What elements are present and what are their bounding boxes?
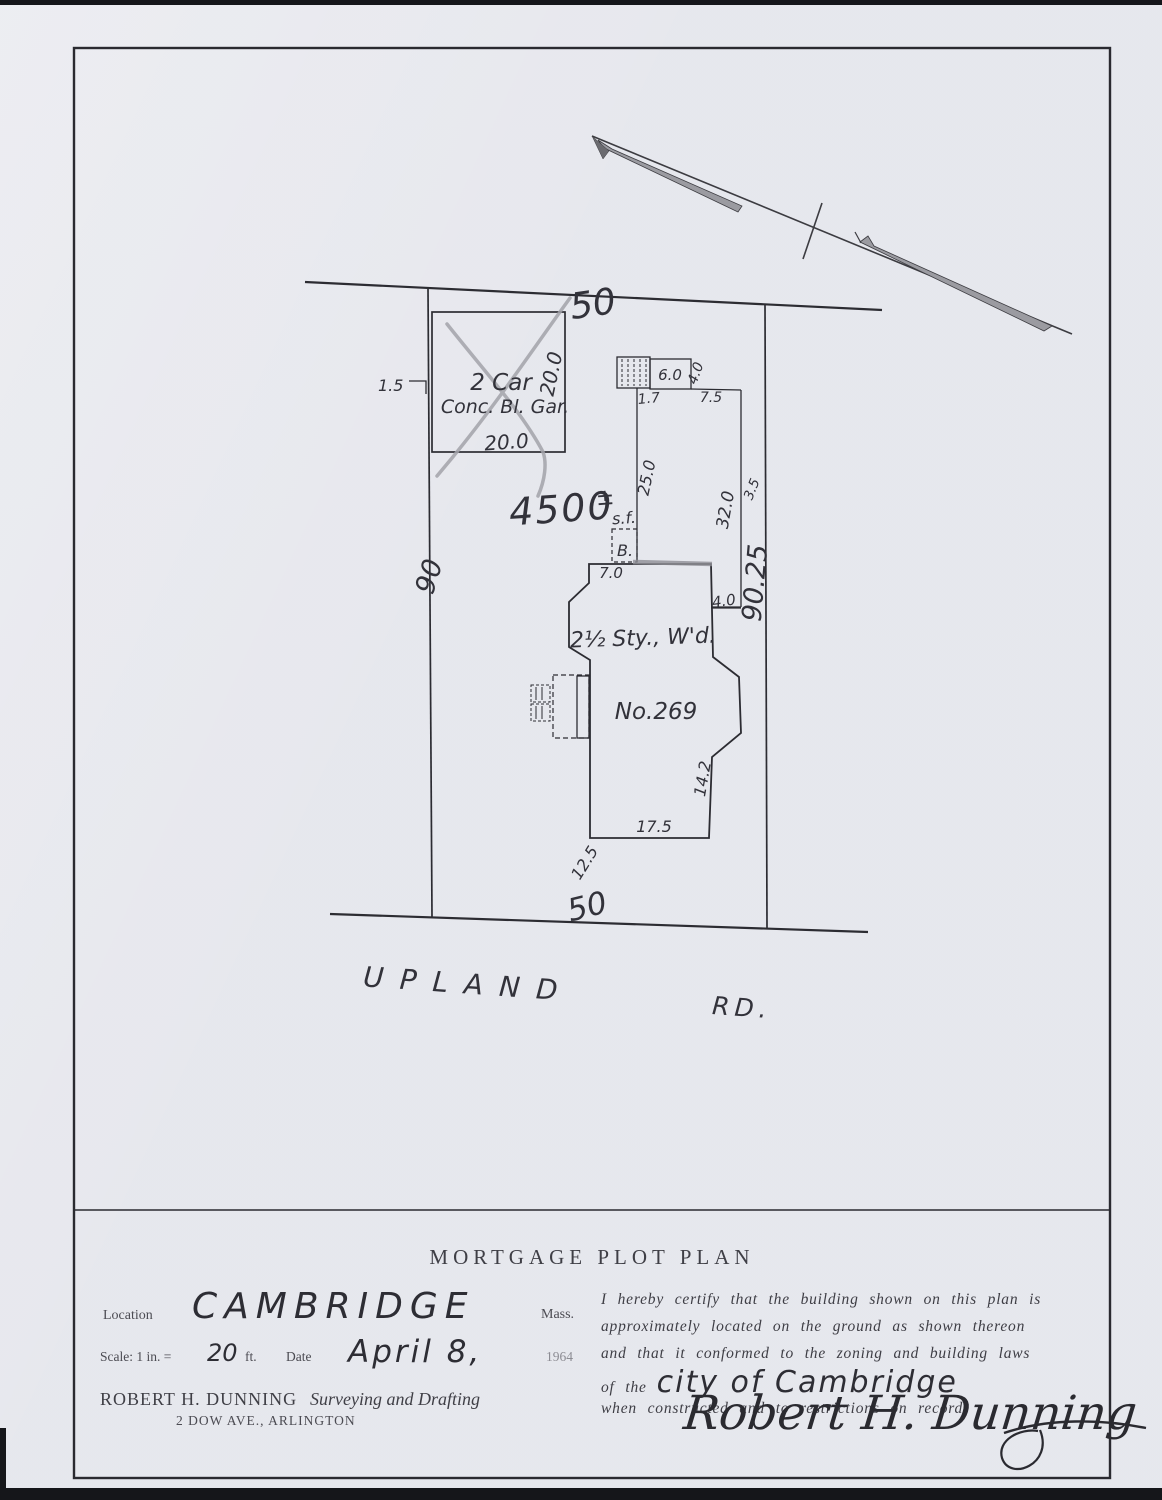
lot-area-unit: s.f. xyxy=(611,508,636,529)
garage-label-line2: Conc. Bl. Gar. xyxy=(441,396,569,418)
surveyor-role: Surveying and Drafting xyxy=(310,1389,480,1410)
bay-label: B. xyxy=(617,541,633,560)
certification-line1: I hereby certify that the building shown… xyxy=(601,1286,1109,1313)
scale-unit-label: ft. xyxy=(245,1349,257,1365)
pencil-smudge xyxy=(633,562,712,564)
plot-plan-drawing: 50 2 Car Conc. Bl. Gar. 20.0 20.0 1.5 6.… xyxy=(0,0,1162,1500)
house-bottom-dim: 17.5 xyxy=(636,817,672,836)
garage-front-dim: 20.0 xyxy=(483,428,529,455)
certification-line2: approximately located on the ground as s… xyxy=(601,1313,1109,1340)
side-right-dim: 90.25 xyxy=(737,543,775,623)
garage-label-line1: 2 Car xyxy=(470,370,533,396)
location-label: Location xyxy=(103,1308,153,1324)
house-outline xyxy=(569,529,741,838)
lot-area-pm: ± xyxy=(595,485,615,511)
house-type-label: 2½ Sty., W'd. xyxy=(570,623,717,653)
side-left-dim: 90 xyxy=(410,556,450,598)
garage-side-dim: 20.0 xyxy=(535,350,568,399)
garage-offset-dim: 1.5 xyxy=(378,376,403,395)
street-name-label: UPLAND xyxy=(362,960,574,1008)
date-label: Date xyxy=(286,1349,311,1365)
side-gap-dim: 32.0 xyxy=(713,489,739,530)
frontage-top-dim: 50 xyxy=(567,281,618,328)
street-suffix-label: RD. xyxy=(711,991,772,1024)
state-label: Mass. xyxy=(541,1307,574,1323)
certification-line3: and that it conformed to the zoning and … xyxy=(601,1340,1109,1367)
surveyor-signature: Robert H. Dunning xyxy=(681,1386,1139,1441)
house-front-left-dim: 7.0 xyxy=(599,564,623,582)
house-side-step-dim: 4.0 xyxy=(711,590,737,611)
scale-label: Scale: 1 in. = xyxy=(100,1349,171,1365)
rear-offset-left-dim: 1.7 xyxy=(637,390,661,408)
date-value: April 8, xyxy=(348,1334,482,1370)
scanned-mortgage-plot-plan: 50 2 Car Conc. Bl. Gar. 20.0 20.0 1.5 6.… xyxy=(0,0,1162,1500)
house-setback-dim: 12.5 xyxy=(567,843,602,883)
north-arrow xyxy=(592,136,1072,334)
surveyor-address: 2 DOW AVE., ARLINGTON xyxy=(176,1413,356,1429)
rear-width-dim: 6.0 xyxy=(658,366,682,384)
porch-outline xyxy=(531,675,589,738)
document-title: MORTGAGE PLOT PLAN xyxy=(74,1245,1110,1270)
surveyor-name: ROBERT H. DUNNING xyxy=(100,1389,297,1410)
location-value: CAMBRIDGE xyxy=(192,1286,475,1327)
rear-offset-right-dim: 7.5 xyxy=(700,390,722,406)
house-number-label: No.269 xyxy=(615,699,698,725)
scale-value: 20 xyxy=(207,1339,238,1367)
rear-depth-dim: 4.0 xyxy=(685,360,708,386)
corner-gap-dim: 3.5 xyxy=(741,476,764,502)
year-value: 1964 xyxy=(546,1349,573,1365)
